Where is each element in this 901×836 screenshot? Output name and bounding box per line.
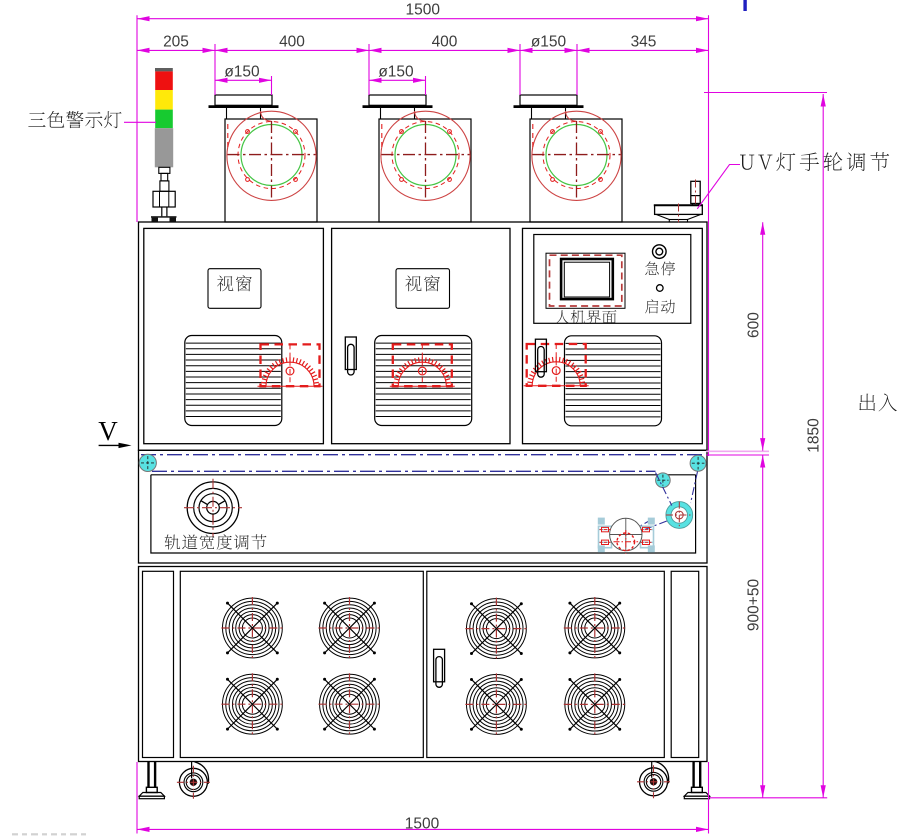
svg-text:900+50: 900+50 xyxy=(746,579,763,632)
svg-text:400: 400 xyxy=(432,34,458,51)
svg-text:V: V xyxy=(98,416,118,446)
svg-text:ø150: ø150 xyxy=(531,34,567,51)
svg-text:ø150: ø150 xyxy=(378,64,414,81)
svg-text:600: 600 xyxy=(746,312,763,338)
svg-text:ø150: ø150 xyxy=(224,64,260,81)
svg-text:1500: 1500 xyxy=(406,2,441,19)
svg-text:205: 205 xyxy=(163,34,189,51)
svg-text:1500: 1500 xyxy=(405,816,440,833)
svg-text:400: 400 xyxy=(279,34,305,51)
svg-text:1850: 1850 xyxy=(805,418,822,453)
svg-text:345: 345 xyxy=(631,34,657,51)
